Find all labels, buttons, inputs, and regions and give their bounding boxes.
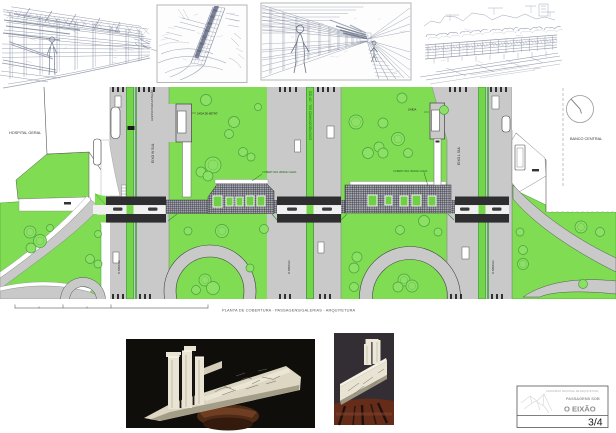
svg-text:EIXO W SUL: EIXO W SUL: [151, 143, 155, 163]
svg-text:O ABRIGO: O ABRIGO: [287, 259, 291, 274]
svg-text:BANCO CENTRAL: BANCO CENTRAL: [570, 137, 602, 141]
svg-text:COBERTURA VERDE CHEIA: COBERTURA VERDE CHEIA: [262, 170, 297, 174]
svg-text:3/4: 3/4: [588, 417, 603, 429]
svg-text:PLANTA DE COBERTURA - PASSAGEN: PLANTA DE COBERTURA - PASSAGENS/GALERIAS…: [222, 308, 356, 313]
svg-text:SAÍDA DE METRÔ: SAÍDA DE METRÔ: [197, 113, 217, 116]
svg-text:PASSAGENS SOB: PASSAGENS SOB: [566, 396, 600, 401]
svg-text:O ABRIGO: O ABRIGO: [491, 259, 495, 274]
svg-text:COBERTURA VERDE CHEIA: COBERTURA VERDE CHEIA: [393, 169, 428, 173]
svg-text:O EIXÃO: O EIXÃO: [564, 405, 596, 414]
svg-text:O ABRIGO: O ABRIGO: [117, 259, 121, 274]
svg-text:EIXO RODOVIÁRIO SUL - DF 002: EIXO RODOVIÁRIO SUL - DF 002: [309, 91, 313, 140]
svg-text:CONCURSO NACIONAL DE ARQUITETU: CONCURSO NACIONAL DE ARQUITETURA: [546, 389, 599, 393]
svg-text:SAÍDA: SAÍDA: [408, 108, 417, 112]
svg-text:HOSPITAL GERAL: HOSPITAL GERAL: [9, 131, 41, 135]
svg-text:EIXO L SUL: EIXO L SUL: [457, 147, 461, 165]
